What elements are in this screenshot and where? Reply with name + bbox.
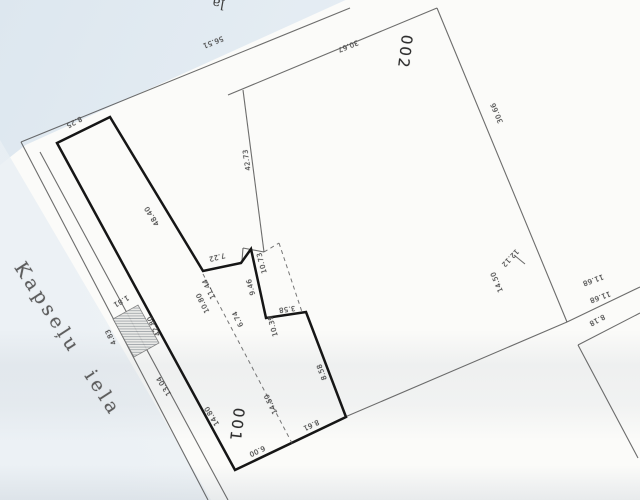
cadastral-plan-scan: 56.5130.678.2548.4042.7330.6612.1214.501… <box>0 0 640 500</box>
subdivision-dashed-c <box>264 243 279 252</box>
boundary-002-south <box>345 322 567 417</box>
neighbour-boundary-east-a <box>578 313 640 345</box>
neighbour-boundary-east-b <box>578 345 638 458</box>
boundary-30-66 <box>437 8 567 322</box>
subdivision-dashed-a <box>279 243 302 312</box>
